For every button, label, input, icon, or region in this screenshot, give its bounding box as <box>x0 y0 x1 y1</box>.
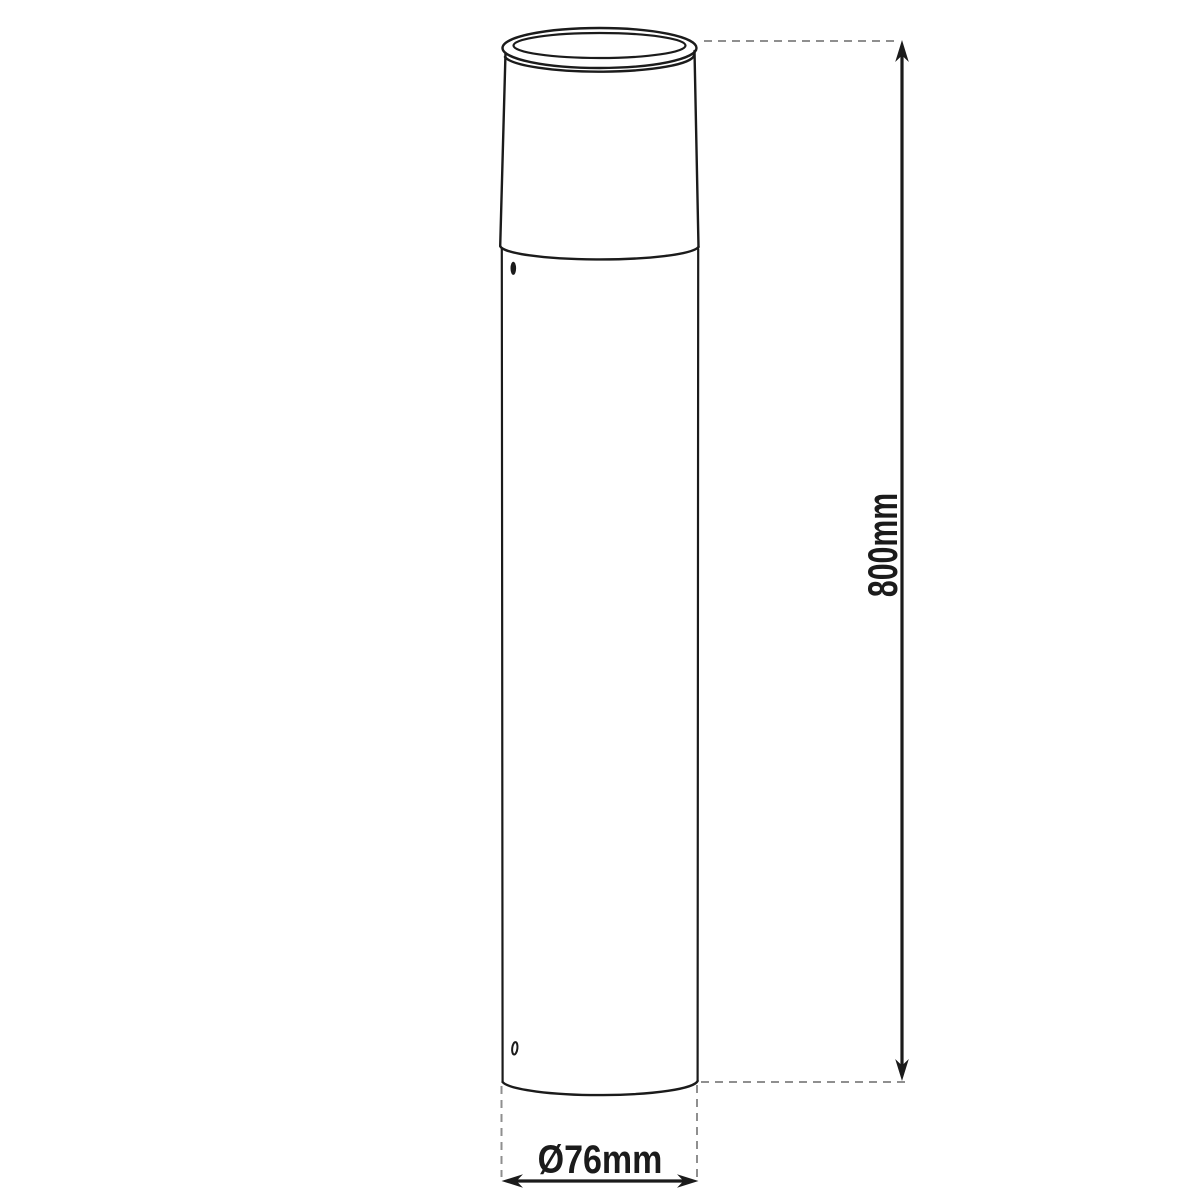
bollard-light-outline <box>500 28 698 1095</box>
cap-left-edge <box>500 53 505 246</box>
diameter-dimension: Ø76mm <box>502 1085 699 1188</box>
cap-top-inner-ellipse <box>514 33 686 58</box>
drawing-canvas: 800mm Ø76mm <box>0 0 1200 1200</box>
cap-right-edge <box>695 51 699 247</box>
height-dimension: 800mm <box>701 40 909 1082</box>
cap-body-junction-edge <box>500 246 698 259</box>
dimension-drawing: 800mm Ø76mm <box>0 0 1200 1200</box>
body-right-edge <box>698 249 699 1081</box>
top-screw-hole <box>511 262 517 275</box>
bottom-screw-hole <box>511 1042 518 1055</box>
height-label: 800mm <box>859 493 906 597</box>
body-bottom-edge <box>503 1081 698 1095</box>
body-left-edge <box>502 248 503 1082</box>
diameter-label: Ø76mm <box>538 1136 663 1181</box>
